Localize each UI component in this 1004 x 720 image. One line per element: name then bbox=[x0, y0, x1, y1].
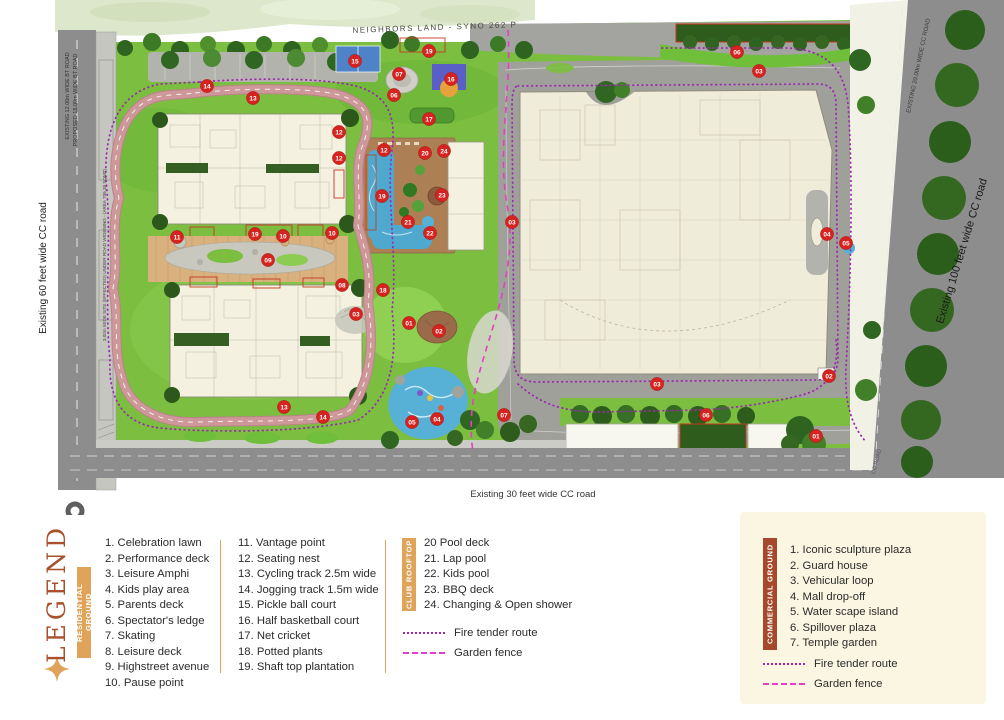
svg-text:05: 05 bbox=[842, 240, 850, 247]
roundabout-symbol bbox=[68, 504, 82, 515]
svg-text:16: 16 bbox=[447, 76, 455, 83]
svg-text:09: 09 bbox=[264, 257, 272, 264]
svg-text:13: 13 bbox=[249, 95, 257, 102]
left-strip-label: 3.00m WIDE SITE (EFFECTED) UNDER ROAD WI… bbox=[102, 168, 107, 341]
legend-item: 10. Pause point bbox=[105, 676, 209, 692]
legend-item: 14. Jogging track 1.5m wide bbox=[238, 583, 379, 599]
map-marker-10: 10 bbox=[276, 229, 289, 242]
svg-text:12: 12 bbox=[335, 155, 343, 162]
map-marker-02: 02 bbox=[432, 324, 445, 337]
map-marker-03: 03 bbox=[505, 215, 518, 228]
left-road-label: Existing 60 feet wide CC road bbox=[38, 202, 49, 334]
map-marker-19: 19 bbox=[248, 227, 261, 240]
map-marker-16: 16 bbox=[444, 72, 457, 85]
svg-text:10: 10 bbox=[279, 233, 287, 240]
legend-item: 24. Changing & Open shower bbox=[424, 598, 572, 614]
commercial-garden-fence-key: Garden fence bbox=[763, 678, 882, 690]
map-marker-03: 03 bbox=[650, 377, 663, 390]
map-marker-19: 19 bbox=[375, 189, 388, 202]
site-plan-page: NEIGHBORS LAND - SYNO 262 P Existing 60 … bbox=[0, 0, 1004, 720]
legend-item: 13. Cycling track 2.5m wide bbox=[238, 567, 379, 583]
map-marker-21: 21 bbox=[401, 215, 414, 228]
svg-text:21: 21 bbox=[404, 219, 412, 226]
map-marker-17: 17 bbox=[422, 112, 435, 125]
legend-item: 12. Seating nest bbox=[238, 552, 379, 568]
svg-text:05: 05 bbox=[408, 419, 416, 426]
map-marker-02: 02 bbox=[822, 369, 835, 382]
svg-text:19: 19 bbox=[378, 193, 386, 200]
map-marker-24: 24 bbox=[437, 144, 450, 157]
map-marker-06: 06 bbox=[730, 45, 743, 58]
legend-divider-2 bbox=[385, 540, 386, 673]
svg-text:03: 03 bbox=[653, 381, 661, 388]
svg-text:03: 03 bbox=[755, 68, 763, 75]
bottom-road-label: Existing 30 feet wide CC road bbox=[470, 489, 595, 500]
legend-item: 1. Iconic sculpture plaza bbox=[790, 543, 911, 559]
svg-text:20: 20 bbox=[421, 150, 429, 157]
svg-text:14: 14 bbox=[319, 414, 327, 421]
svg-text:04: 04 bbox=[433, 416, 441, 423]
mall-building bbox=[520, 81, 832, 374]
commercial-items: 1. Iconic sculpture plaza2. Guard house3… bbox=[790, 543, 911, 652]
map-marker-06: 06 bbox=[387, 88, 400, 101]
fire-route-swatch bbox=[763, 663, 805, 665]
map-marker-20: 20 bbox=[418, 146, 431, 159]
legend-item: 19. Shaft top plantation bbox=[238, 660, 379, 676]
svg-text:03: 03 bbox=[508, 219, 516, 226]
map-marker-13: 13 bbox=[246, 91, 259, 104]
map-marker-08: 08 bbox=[335, 278, 348, 291]
svg-text:10: 10 bbox=[328, 230, 336, 237]
legend-item: 15. Pickle ball court bbox=[238, 598, 379, 614]
svg-text:12: 12 bbox=[380, 147, 388, 154]
residential-building-b bbox=[164, 277, 369, 405]
legend-item: 3. Vehicular loop bbox=[790, 574, 911, 590]
svg-text:02: 02 bbox=[825, 373, 833, 380]
legend-item: 3. Leisure Amphi bbox=[105, 567, 209, 583]
svg-text:22: 22 bbox=[426, 230, 434, 237]
map-marker-03: 03 bbox=[349, 307, 362, 320]
svg-text:07: 07 bbox=[500, 412, 508, 419]
commercial-ground-badge: COMMERCIAL GROUND bbox=[763, 538, 777, 650]
svg-text:17: 17 bbox=[425, 116, 433, 123]
svg-text:08: 08 bbox=[338, 282, 346, 289]
legend-item: 6. Spectator's ledge bbox=[105, 614, 209, 630]
legend-item: 7. Temple garden bbox=[790, 636, 911, 652]
svg-text:11: 11 bbox=[174, 234, 181, 241]
svg-text:12: 12 bbox=[335, 129, 343, 136]
legend-item: 16. Half basketball court bbox=[238, 614, 379, 630]
legend-item: 2. Performance deck bbox=[105, 552, 209, 568]
map-marker-22: 22 bbox=[423, 226, 436, 239]
legend-item: 17. Net cricket bbox=[238, 629, 379, 645]
map-marker-15: 15 bbox=[348, 54, 361, 67]
legend-item: 20 Pool deck bbox=[424, 536, 572, 552]
garden-fence-label: Garden fence bbox=[814, 678, 882, 690]
svg-text:06: 06 bbox=[733, 49, 741, 56]
svg-text:07: 07 bbox=[395, 71, 403, 78]
map-marker-23: 23 bbox=[435, 188, 448, 201]
legend-divider-1 bbox=[220, 540, 221, 673]
map-marker-05: 05 bbox=[405, 415, 418, 428]
svg-text:03: 03 bbox=[352, 311, 360, 318]
map-marker-12: 12 bbox=[377, 143, 390, 156]
map-marker-04: 04 bbox=[430, 412, 443, 425]
legend-item: 5. Parents deck bbox=[105, 598, 209, 614]
map-marker-04: 04 bbox=[820, 227, 833, 240]
svg-text:18: 18 bbox=[379, 287, 387, 294]
residential-items-col1: 1. Celebration lawn2. Performance deck3.… bbox=[105, 536, 209, 691]
svg-text:15: 15 bbox=[351, 58, 359, 65]
map-marker-07: 07 bbox=[497, 408, 510, 421]
map-marker-05: 05 bbox=[839, 236, 852, 249]
residential-ground-badge: RESIDENTIAL GROUND bbox=[77, 567, 91, 658]
svg-text:24: 24 bbox=[440, 148, 448, 155]
fire-route-swatch bbox=[403, 632, 445, 634]
legend-item: 4. Kids play area bbox=[105, 583, 209, 599]
map-marker-11: 11 bbox=[170, 230, 183, 243]
legend-item: 5. Water scape island bbox=[790, 605, 911, 621]
map-marker-09: 09 bbox=[261, 253, 274, 266]
svg-text:13: 13 bbox=[280, 404, 288, 411]
garden-fence-swatch bbox=[763, 683, 805, 685]
master-plan-map: NEIGHBORS LAND - SYNO 262 P Existing 60 … bbox=[0, 0, 1004, 515]
map-marker-12: 12 bbox=[332, 125, 345, 138]
map-marker-07: 07 bbox=[392, 67, 405, 80]
residential-items-col2: 11. Vantage point12. Seating nest13. Cyc… bbox=[238, 536, 379, 676]
garden-fence-key: Garden fence bbox=[403, 647, 522, 659]
legend-item: 2. Guard house bbox=[790, 559, 911, 575]
legend-item: 18. Potted plants bbox=[238, 645, 379, 661]
map-marker-14: 14 bbox=[316, 410, 329, 423]
legend-item: 9. Highstreet avenue bbox=[105, 660, 209, 676]
top-left-road-label-2: PROPOSED 18.00m WIDE BT ROAD bbox=[73, 54, 79, 147]
legend-item: 21. Lap pool bbox=[424, 552, 572, 568]
garden-fence-label: Garden fence bbox=[454, 647, 522, 659]
svg-text:06: 06 bbox=[702, 412, 710, 419]
map-marker-13: 13 bbox=[277, 400, 290, 413]
fire-route-label: Fire tender route bbox=[814, 658, 898, 670]
legend-item: 6. Spillover plaza bbox=[790, 621, 911, 637]
commercial-fire-route-key: Fire tender route bbox=[763, 658, 898, 670]
map-marker-01: 01 bbox=[809, 429, 822, 442]
club-rooftop-badge: CLUB ROOFTOP bbox=[402, 538, 416, 611]
map-marker-18: 18 bbox=[376, 283, 389, 296]
svg-text:14: 14 bbox=[203, 83, 211, 90]
svg-text:06: 06 bbox=[390, 92, 398, 99]
svg-text:23: 23 bbox=[438, 192, 446, 199]
garden-fence-swatch bbox=[403, 652, 445, 654]
svg-text:02: 02 bbox=[435, 328, 443, 335]
map-marker-03: 03 bbox=[752, 64, 765, 77]
svg-text:19: 19 bbox=[251, 231, 259, 238]
legend-item: 7. Skating bbox=[105, 629, 209, 645]
map-marker-12: 12 bbox=[332, 151, 345, 164]
north-hedge bbox=[660, 24, 852, 68]
map-marker-19: 19 bbox=[422, 44, 435, 57]
fire-tender-route-key: Fire tender route bbox=[403, 627, 538, 639]
legend-item: 23. BBQ deck bbox=[424, 583, 572, 599]
map-marker-06: 06 bbox=[699, 408, 712, 421]
map-marker-01: 01 bbox=[402, 316, 415, 329]
fire-route-label: Fire tender route bbox=[454, 627, 538, 639]
svg-text:01: 01 bbox=[812, 433, 820, 440]
legend-item: 4. Mall drop-off bbox=[790, 590, 911, 606]
residential-building-a bbox=[152, 109, 359, 239]
legend-item: 1. Celebration lawn bbox=[105, 536, 209, 552]
top-left-road-label-1: EXISTING 12.00m WIDE BT ROAD bbox=[65, 52, 71, 139]
club-items: 20 Pool deck21. Lap pool22. Kids pool23.… bbox=[424, 536, 572, 614]
legend-title: LEGEND bbox=[42, 541, 76, 663]
commercial-legend-panel: COMMERCIAL GROUND 1. Iconic sculpture pl… bbox=[740, 512, 986, 704]
map-marker-10: 10 bbox=[325, 226, 338, 239]
legend-item: 8. Leisure deck bbox=[105, 645, 209, 661]
svg-text:04: 04 bbox=[823, 231, 831, 238]
legend-item: 22. Kids pool bbox=[424, 567, 572, 583]
map-marker-14: 14 bbox=[200, 79, 213, 92]
svg-text:19: 19 bbox=[425, 48, 433, 55]
legend-item: 11. Vantage point bbox=[238, 536, 379, 552]
svg-text:01: 01 bbox=[405, 320, 413, 327]
